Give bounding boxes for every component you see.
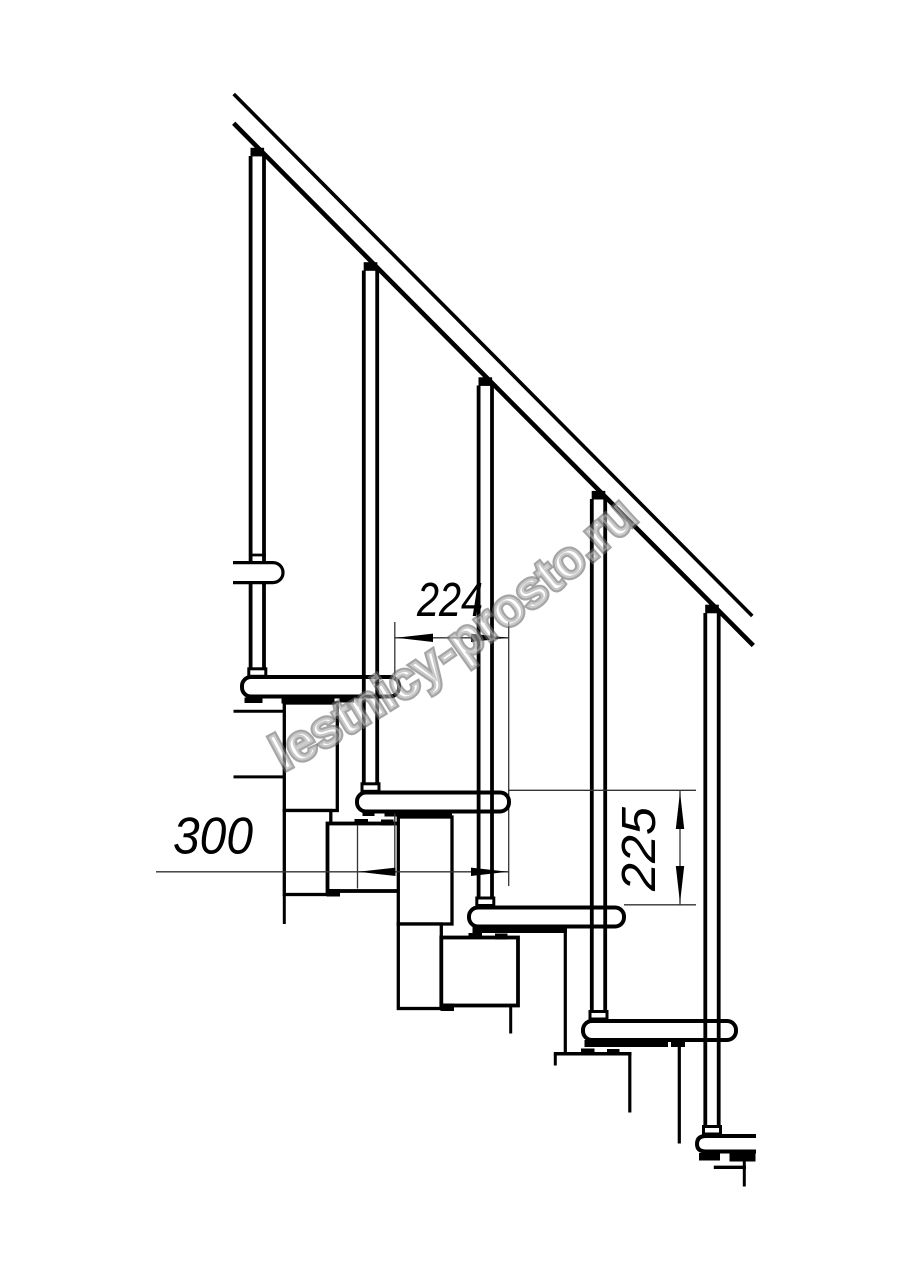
svg-text:225: 225 bbox=[613, 807, 666, 892]
svg-text:300: 300 bbox=[173, 808, 253, 866]
